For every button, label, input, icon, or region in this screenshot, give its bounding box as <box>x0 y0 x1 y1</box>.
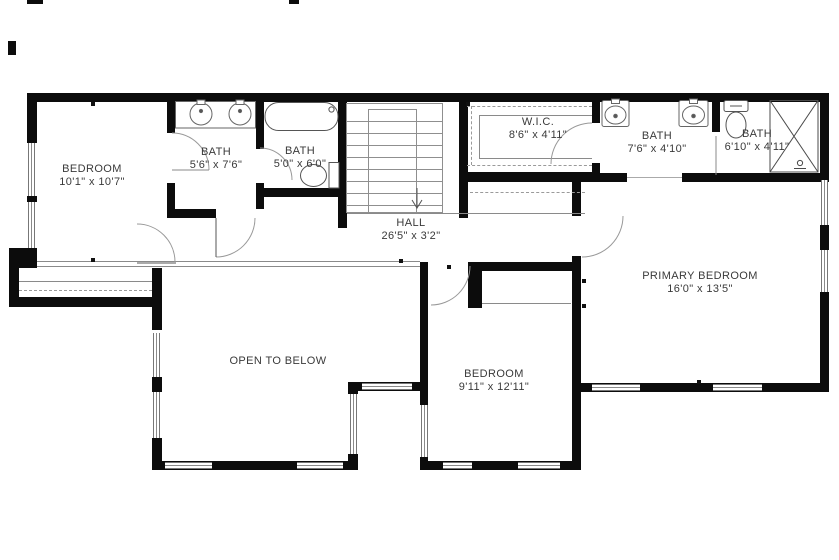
room-name: PRIMARY BEDROOM <box>642 270 758 283</box>
bathtub-icon <box>265 103 338 131</box>
staircase <box>346 104 443 213</box>
room-label-wic: W.I.C. 8'6" x 4'11" <box>509 116 567 142</box>
room-dims: 10'1" x 10'7" <box>59 176 125 189</box>
double-sink-icon <box>602 99 708 127</box>
door-swing-arc <box>216 218 255 257</box>
double-sink-vanity-icon <box>176 100 256 128</box>
room-dims: 7'6" x 4'10" <box>627 143 686 156</box>
room-name: OPEN TO BELOW <box>229 355 326 368</box>
room-dims: 9'11" x 12'11" <box>459 381 529 394</box>
room-label-bedroom2: BEDROOM 9'11" x 12'11" <box>459 368 529 394</box>
room-name: BATH <box>201 146 231 159</box>
room-label-bedroom1: BEDROOM 10'1" x 10'7" <box>59 163 125 189</box>
door-swing-arc <box>137 224 175 262</box>
room-name: BEDROOM <box>62 163 122 176</box>
floor-plan: BEDROOM 10'1" x 10'7" BATH 5'6" x 7'6" B… <box>0 0 839 560</box>
room-name: HALL <box>396 217 425 230</box>
room-name: BATH <box>285 145 315 158</box>
room-label-open-to-below: OPEN TO BELOW <box>229 355 326 368</box>
room-dims: 8'6" x 4'11" <box>509 129 567 142</box>
room-dims: 5'0" x 6'0" <box>274 158 327 171</box>
room-label-bath-d: BATH 6'10" x 4'11" <box>725 128 790 154</box>
room-name: BEDROOM <box>464 368 524 381</box>
room-name: W.I.C. <box>522 116 554 129</box>
room-name: BATH <box>742 128 772 141</box>
door-swing-arc <box>431 266 470 305</box>
door-swing-arc <box>582 216 623 257</box>
room-dims: 5'6" x 7'6" <box>190 159 243 172</box>
room-dims: 6'10" x 4'11" <box>725 141 790 154</box>
room-label-hall: HALL 26'5" x 3'2" <box>381 217 440 243</box>
room-label-bath-a: BATH 5'6" x 7'6" <box>190 146 243 172</box>
room-name: BATH <box>642 130 672 143</box>
room-label-bath-b: BATH 5'0" x 6'0" <box>274 145 327 171</box>
room-dims: 26'5" x 3'2" <box>381 230 440 243</box>
room-label-primary-bedroom: PRIMARY BEDROOM 16'0" x 13'5" <box>642 270 758 296</box>
room-dims: 16'0" x 13'5" <box>667 283 733 296</box>
room-label-bath-c: BATH 7'6" x 4'10" <box>627 130 686 156</box>
